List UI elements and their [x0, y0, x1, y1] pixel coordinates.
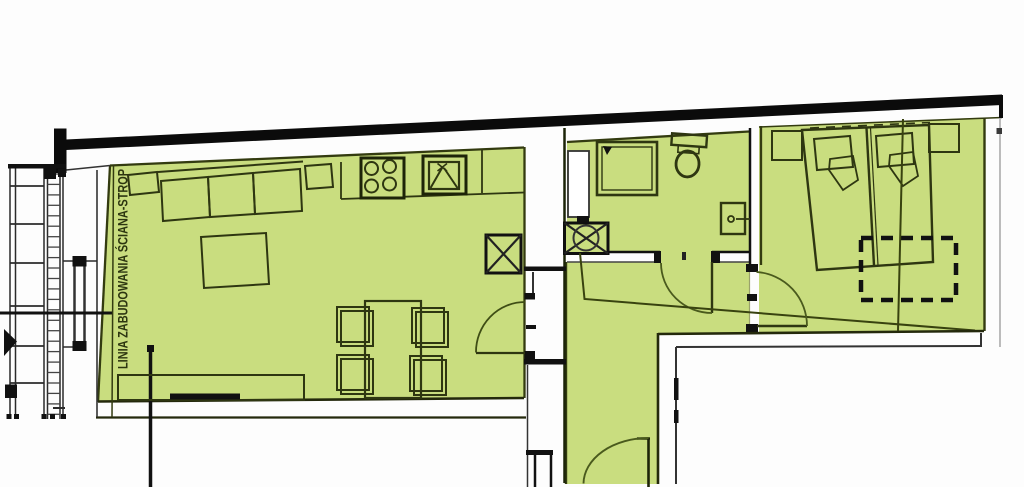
- svg-text:LINIA ZABUDOWANIA ŚCIANA-STROP: LINIA ZABUDOWANIA ŚCIANA-STROP: [116, 169, 131, 369]
